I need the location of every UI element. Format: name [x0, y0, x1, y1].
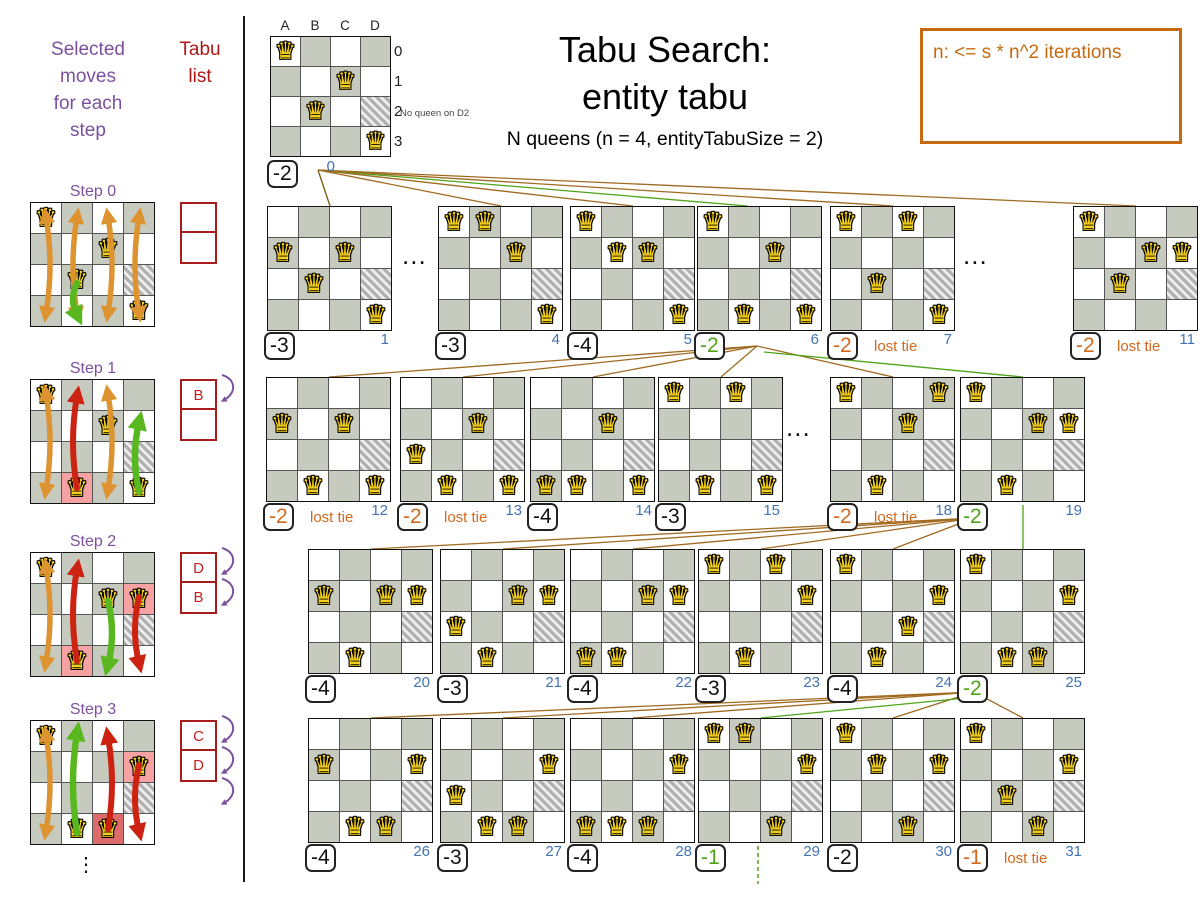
queen-icon: ♛ — [313, 581, 335, 611]
board-cell-D2 — [124, 442, 154, 472]
board-cell-C0 — [633, 550, 663, 580]
board-cell-B3: ♛ — [62, 646, 92, 676]
tree-board-4: ♛♛♛♛ — [438, 206, 563, 331]
step-board-0: ♛♛♛♛ — [30, 202, 155, 327]
queen-icon: ♛ — [275, 37, 297, 66]
queen-icon: ♛ — [507, 812, 529, 842]
board-cell-D0 — [124, 203, 154, 233]
queen-icon: ♛ — [765, 812, 787, 842]
board-cell-C3: ♛ — [1023, 812, 1053, 842]
board-cell-D2 — [924, 612, 954, 642]
board-cell-D2 — [1054, 612, 1084, 642]
score-badge-24: -4 — [827, 675, 858, 703]
queen-icon: ♛ — [406, 750, 428, 780]
board-cell-A2 — [831, 440, 861, 470]
board-cell-D1: ♛ — [792, 750, 822, 780]
queen-icon: ♛ — [302, 471, 324, 501]
board-cell-A1 — [31, 584, 61, 614]
board-cell-C1 — [761, 750, 791, 780]
index-label-28: 28 — [652, 843, 692, 860]
board-cell-D1 — [924, 409, 954, 439]
root-col-label-D: D — [360, 18, 390, 33]
score-badge-19: -2 — [957, 503, 988, 531]
edge-line — [764, 352, 1023, 377]
queen-icon: ♛ — [97, 814, 119, 844]
board-cell-C2 — [330, 269, 360, 299]
board-cell-D0 — [402, 550, 432, 580]
board-cell-D1: ♛ — [124, 752, 154, 782]
board-cell-C2 — [633, 612, 663, 642]
board-cell-B2 — [602, 781, 632, 811]
iterations-note-box: n: <= s * n^2 iterations — [920, 28, 1182, 144]
tree-board-31: ♛♛♛♛ — [960, 718, 1085, 843]
board-cell-B2 — [62, 783, 92, 813]
tree-board-27: ♛♛♛♛ — [440, 718, 565, 843]
board-cell-D3 — [124, 814, 154, 844]
board-cell-C3 — [893, 471, 923, 501]
index-label-7: 7 — [912, 331, 952, 348]
board-cell-B1 — [602, 581, 632, 611]
board-cell-D3: ♛ — [360, 471, 390, 501]
board-cell-C2 — [463, 440, 493, 470]
board-cell-B2 — [602, 269, 632, 299]
step-label-2: Step 2 — [30, 533, 156, 551]
board-cell-D1 — [124, 411, 154, 441]
board-cell-D2 — [124, 265, 154, 295]
root-score: -2 — [267, 160, 298, 188]
board-cell-A0: ♛ — [31, 380, 61, 410]
queen-icon: ♛ — [313, 750, 335, 780]
tabu-history-arrow-icon — [217, 745, 243, 775]
board-cell-A3 — [961, 812, 991, 842]
board-cell-C3 — [93, 473, 123, 503]
board-cell-A2 — [571, 781, 601, 811]
queen-icon: ♛ — [703, 550, 725, 580]
board-cell-A1 — [831, 238, 861, 268]
board-cell-C3 — [760, 300, 790, 330]
queen-icon: ♛ — [375, 581, 397, 611]
queen-icon: ♛ — [445, 612, 467, 642]
queen-icon: ♛ — [97, 234, 119, 264]
index-label-30: 30 — [912, 843, 952, 860]
index-label-25: 25 — [1042, 674, 1082, 691]
board-cell-C0 — [893, 378, 923, 408]
board-cell-A3 — [831, 643, 861, 673]
board-cell-A2 — [1074, 269, 1104, 299]
board-cell-D1 — [494, 409, 524, 439]
board-cell-C1: ♛ — [463, 409, 493, 439]
board-cell-D2 — [124, 615, 154, 645]
board-cell-A2 — [309, 612, 339, 642]
tabu-history-arrow-icon — [217, 546, 243, 576]
queen-icon: ♛ — [405, 440, 427, 470]
board-cell-C0 — [329, 378, 359, 408]
board-cell-B2: ♛ — [299, 269, 329, 299]
board-cell-A1 — [571, 238, 601, 268]
queen-icon: ♛ — [1140, 238, 1162, 268]
board-cell-D1: ♛ — [792, 581, 822, 611]
edge-line — [318, 170, 893, 206]
index-label-20: 20 — [390, 674, 430, 691]
board-cell-D2 — [494, 440, 524, 470]
board-cell-B3: ♛ — [729, 300, 759, 330]
score-badge-5: -4 — [567, 332, 598, 360]
tabu-list-title: Tabu list — [168, 36, 232, 90]
queen-icon: ♛ — [365, 127, 387, 156]
board-cell-A0: ♛ — [831, 550, 861, 580]
board-cell-C1: ♛ — [633, 581, 663, 611]
board-cell-A2 — [831, 612, 861, 642]
panel-divider — [243, 16, 245, 882]
board-cell-B1 — [862, 238, 892, 268]
board-cell-D2 — [664, 612, 694, 642]
board-cell-B3: ♛ — [862, 643, 892, 673]
queen-icon: ♛ — [1078, 207, 1100, 237]
board-cell-B2 — [340, 781, 370, 811]
queen-icon: ♛ — [476, 812, 498, 842]
board-cell-B3: ♛ — [862, 471, 892, 501]
board-cell-C3: ♛ — [761, 812, 791, 842]
queen-icon: ♛ — [97, 584, 119, 614]
board-cell-B0 — [298, 378, 328, 408]
root-board: ♛♛♛♛ — [270, 36, 391, 157]
edge-line — [633, 692, 974, 718]
board-cell-A3 — [961, 471, 991, 501]
board-cell-D1: ♛ — [664, 581, 694, 611]
tree-board-7: ♛♛♛♛ — [830, 206, 955, 331]
board-cell-C0 — [371, 550, 401, 580]
board-cell-A3 — [309, 812, 339, 842]
board-cell-C3 — [633, 643, 663, 673]
board-cell-C1 — [893, 581, 923, 611]
queen-icon: ♛ — [333, 409, 355, 439]
lost-tie-label-31: lost tie — [1004, 850, 1047, 867]
board-cell-C2 — [760, 269, 790, 299]
queen-icon: ♛ — [364, 471, 386, 501]
queen-icon: ♛ — [1027, 812, 1049, 842]
board-cell-D3: ♛ — [791, 300, 821, 330]
tree-board-23: ♛♛♛♛ — [698, 549, 823, 674]
board-cell-D1 — [532, 238, 562, 268]
board-cell-B0 — [301, 37, 330, 66]
board-cell-C3: ♛ — [1023, 643, 1053, 673]
board-cell-D1 — [791, 238, 821, 268]
board-cell-D3: ♛ — [752, 471, 782, 501]
queen-icon: ♛ — [928, 300, 950, 330]
tree-board-15: ♛♛♛♛ — [658, 377, 783, 502]
board-cell-B2 — [432, 440, 462, 470]
board-cell-D3: ♛ — [664, 300, 694, 330]
queen-icon: ♛ — [628, 471, 650, 501]
board-cell-A0: ♛ — [439, 207, 469, 237]
board-cell-B0 — [862, 207, 892, 237]
board-cell-B3 — [299, 300, 329, 330]
board-cell-A3 — [268, 300, 298, 330]
board-cell-D2 — [791, 269, 821, 299]
queen-icon: ♛ — [1027, 643, 1049, 673]
board-cell-B2 — [690, 440, 720, 470]
board-cell-C2 — [371, 612, 401, 642]
tree-board-14: ♛♛♛♛ — [530, 377, 655, 502]
board-cell-A1 — [698, 238, 728, 268]
board-cell-D3 — [924, 643, 954, 673]
board-cell-A3 — [699, 812, 729, 842]
board-cell-A2 — [31, 442, 61, 472]
board-cell-C2 — [93, 615, 123, 645]
board-cell-A1: ♛ — [268, 238, 298, 268]
index-label-23: 23 — [780, 674, 820, 691]
board-cell-D0 — [752, 378, 782, 408]
board-cell-C3: ♛ — [371, 812, 401, 842]
board-cell-D0 — [1167, 207, 1197, 237]
queen-icon: ♛ — [606, 238, 628, 268]
board-cell-A2 — [309, 781, 339, 811]
board-cell-D3 — [924, 471, 954, 501]
board-cell-D1: ♛ — [534, 750, 564, 780]
board-cell-D0 — [664, 719, 694, 749]
board-cell-B2 — [862, 781, 892, 811]
board-cell-B0 — [432, 378, 462, 408]
board-cell-B2 — [602, 612, 632, 642]
board-cell-C0 — [593, 378, 623, 408]
board-cell-B2 — [470, 269, 500, 299]
board-cell-C1: ♛ — [760, 238, 790, 268]
board-cell-C0 — [501, 207, 531, 237]
board-cell-B1 — [862, 409, 892, 439]
board-cell-B0 — [62, 721, 92, 751]
board-cell-D3: ♛ — [361, 127, 390, 156]
score-badge-26: -4 — [305, 844, 336, 872]
board-cell-C3 — [503, 643, 533, 673]
root-row-label-3: 3 — [394, 133, 402, 150]
index-label-11: 11 — [1155, 331, 1195, 348]
board-cell-C3: ♛ — [633, 812, 663, 842]
queen-icon: ♛ — [866, 269, 888, 299]
board-cell-D2 — [534, 781, 564, 811]
board-cell-D2 — [1054, 440, 1084, 470]
queen-icon: ♛ — [928, 378, 950, 408]
board-cell-B3: ♛ — [298, 471, 328, 501]
board-cell-C0 — [633, 207, 663, 237]
board-cell-C2 — [893, 781, 923, 811]
board-cell-D3 — [1167, 300, 1197, 330]
board-cell-B1 — [62, 411, 92, 441]
queen-icon: ♛ — [637, 581, 659, 611]
step-label-0: Step 0 — [30, 183, 156, 201]
board-cell-A2 — [439, 269, 469, 299]
lost-tie-label-12: lost tie — [310, 509, 353, 526]
board-cell-A0: ♛ — [271, 37, 300, 66]
score-badge-25: -2 — [957, 675, 988, 703]
board-cell-D1 — [752, 409, 782, 439]
queen-icon: ♛ — [335, 67, 357, 96]
board-cell-A0: ♛ — [31, 721, 61, 751]
board-cell-B3: ♛ — [472, 812, 502, 842]
index-label-13: 13 — [482, 502, 522, 519]
board-cell-A3 — [831, 471, 861, 501]
board-cell-C3 — [1136, 300, 1166, 330]
queen-icon: ♛ — [575, 207, 597, 237]
board-cell-A2 — [531, 440, 561, 470]
board-cell-B1 — [730, 750, 760, 780]
queen-icon: ♛ — [35, 203, 57, 233]
tree-board-29: ♛♛♛♛ — [698, 718, 823, 843]
board-cell-A1 — [1074, 238, 1104, 268]
tree-board-6: ♛♛♛♛ — [697, 206, 822, 331]
board-cell-B3: ♛ — [730, 643, 760, 673]
board-cell-C1: ♛ — [93, 584, 123, 614]
board-cell-B2 — [730, 781, 760, 811]
queen-icon: ♛ — [996, 781, 1018, 811]
queen-icon: ♛ — [637, 238, 659, 268]
board-cell-C2 — [1023, 781, 1053, 811]
board-cell-A3 — [439, 300, 469, 330]
tabu-history-arrow-icon — [217, 714, 243, 744]
lost-tie-label-13: lost tie — [444, 509, 487, 526]
queen-icon: ♛ — [965, 550, 987, 580]
index-label-6: 6 — [779, 331, 819, 348]
queen-icon: ♛ — [765, 550, 787, 580]
board-cell-B3 — [62, 296, 92, 326]
board-cell-C1 — [503, 750, 533, 780]
board-cell-D0 — [924, 207, 954, 237]
board-cell-B3: ♛ — [340, 812, 370, 842]
score-badge-6: -2 — [694, 332, 725, 360]
score-badge-14: -4 — [527, 503, 558, 531]
score-badge-23: -3 — [695, 675, 726, 703]
board-cell-B1 — [340, 750, 370, 780]
tree-board-18: ♛♛♛♛ — [830, 377, 955, 502]
queen-icon: ♛ — [344, 643, 366, 673]
board-cell-B1 — [472, 581, 502, 611]
board-cell-D2 — [124, 783, 154, 813]
board-cell-A1 — [831, 750, 861, 780]
queen-icon: ♛ — [505, 238, 527, 268]
board-cell-B3: ♛ — [472, 643, 502, 673]
queen-icon: ♛ — [536, 300, 558, 330]
root-row-label-0: 0 — [394, 43, 402, 60]
queen-icon: ♛ — [498, 471, 520, 501]
board-cell-A1 — [699, 581, 729, 611]
board-cell-B0 — [690, 378, 720, 408]
board-cell-A1: ♛ — [267, 409, 297, 439]
board-cell-B0 — [992, 550, 1022, 580]
queen-icon: ♛ — [575, 812, 597, 842]
board-cell-B1 — [432, 409, 462, 439]
iterations-note: n: <= s * n^2 iterations — [923, 31, 1179, 75]
queen-icon: ♛ — [305, 97, 327, 126]
score-badge-18: -2 — [827, 503, 858, 531]
board-cell-B3: ♛ — [340, 643, 370, 673]
board-cell-A2 — [659, 440, 689, 470]
board-cell-D2 — [924, 269, 954, 299]
root-col-label-A: A — [270, 18, 300, 33]
queen-icon: ♛ — [597, 409, 619, 439]
board-cell-D2 — [532, 269, 562, 299]
board-cell-A1 — [31, 411, 61, 441]
board-cell-D0 — [360, 378, 390, 408]
no-queen-note: No queen on D2 — [400, 108, 469, 119]
queen-icon: ♛ — [507, 581, 529, 611]
board-cell-B1 — [1105, 238, 1135, 268]
board-cell-A3 — [267, 471, 297, 501]
board-cell-A0: ♛ — [1074, 207, 1104, 237]
board-cell-D0 — [532, 207, 562, 237]
tree-ellipsis-1: ... — [963, 240, 988, 271]
board-cell-B2 — [472, 781, 502, 811]
board-cell-C2 — [721, 440, 751, 470]
board-cell-D3 — [402, 643, 432, 673]
queen-icon: ♛ — [866, 643, 888, 673]
queen-icon: ♛ — [897, 612, 919, 642]
queen-icon: ♛ — [897, 207, 919, 237]
root-row-label-1: 1 — [394, 73, 402, 90]
board-cell-A1 — [961, 581, 991, 611]
queen-icon: ♛ — [272, 238, 294, 268]
index-label-29: 29 — [780, 843, 820, 860]
board-cell-C3 — [501, 300, 531, 330]
board-cell-B1 — [299, 238, 329, 268]
board-cell-B1: ♛ — [862, 750, 892, 780]
board-cell-B2: ♛ — [1105, 269, 1135, 299]
board-cell-C1: ♛ — [501, 238, 531, 268]
board-cell-A2 — [698, 269, 728, 299]
board-cell-B0 — [602, 719, 632, 749]
board-cell-B0 — [299, 207, 329, 237]
score-badge-1: -3 — [264, 332, 295, 360]
board-cell-B1 — [62, 752, 92, 782]
board-cell-C0 — [503, 719, 533, 749]
board-cell-D0 — [402, 719, 432, 749]
board-cell-C0 — [1136, 207, 1166, 237]
board-cell-A2 — [31, 615, 61, 645]
board-cell-C1 — [93, 752, 123, 782]
step-label-3: Step 3 — [30, 701, 156, 719]
board-cell-A0 — [309, 719, 339, 749]
board-cell-D1: ♛ — [1054, 750, 1084, 780]
root-index-label: 0 — [295, 158, 335, 175]
queen-icon: ♛ — [996, 643, 1018, 673]
board-cell-A1 — [699, 750, 729, 780]
queen-icon: ♛ — [436, 471, 458, 501]
board-cell-D0 — [924, 719, 954, 749]
queen-icon: ♛ — [128, 473, 150, 503]
board-cell-B1: ♛ — [602, 238, 632, 268]
edge-line — [318, 170, 330, 206]
board-cell-A0: ♛ — [961, 378, 991, 408]
queen-icon: ♛ — [1058, 750, 1080, 780]
board-cell-C0: ♛ — [721, 378, 751, 408]
board-cell-C0 — [893, 719, 923, 749]
board-cell-B2 — [340, 612, 370, 642]
board-cell-D2 — [924, 781, 954, 811]
queen-icon: ♛ — [835, 207, 857, 237]
board-cell-A2: ♛ — [401, 440, 431, 470]
board-cell-B1 — [992, 750, 1022, 780]
title-line2: entity tabu — [480, 73, 850, 120]
board-cell-D2 — [361, 97, 390, 126]
board-cell-B0 — [992, 719, 1022, 749]
board-cell-B1 — [62, 584, 92, 614]
score-badge-20: -4 — [305, 675, 336, 703]
board-cell-D0 — [792, 719, 822, 749]
board-cell-C0 — [331, 37, 360, 66]
board-cell-C3 — [329, 471, 359, 501]
board-cell-B0 — [340, 550, 370, 580]
board-cell-B0 — [472, 719, 502, 749]
board-cell-B3 — [470, 300, 500, 330]
tabu-history-arrow-icon — [217, 373, 243, 403]
